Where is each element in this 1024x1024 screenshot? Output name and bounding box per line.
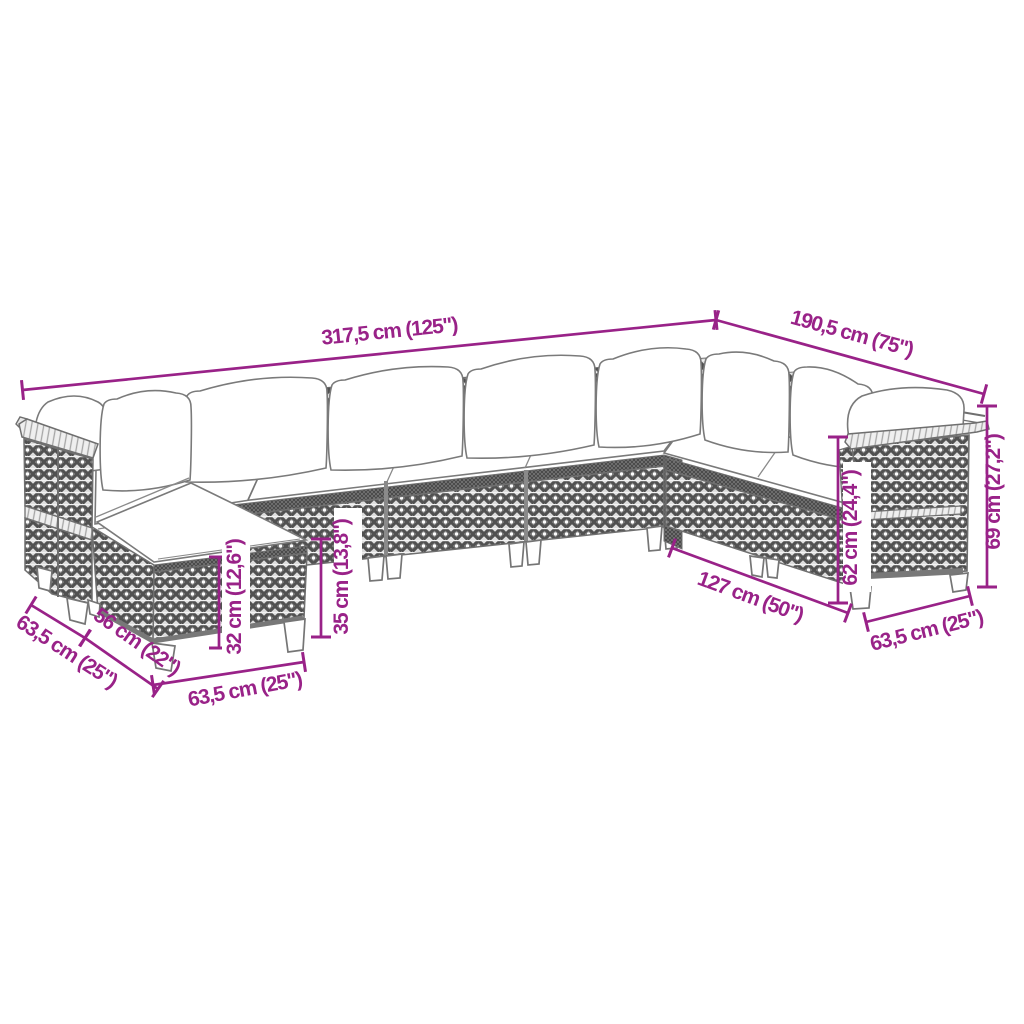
svg-text:190,5 cm (75"): 190,5 cm (75") bbox=[788, 306, 916, 362]
svg-text:35 cm (13,8"): 35 cm (13,8") bbox=[330, 519, 353, 634]
svg-text:63,5 cm (25"): 63,5 cm (25") bbox=[868, 606, 986, 656]
svg-text:317,5 cm (125"): 317,5 cm (125") bbox=[320, 313, 458, 349]
svg-text:69 cm (27,2"): 69 cm (27,2") bbox=[982, 434, 1005, 549]
svg-text:32 cm (12,6"): 32 cm (12,6") bbox=[223, 539, 246, 654]
svg-text:62 cm (24,4"): 62 cm (24,4") bbox=[839, 470, 862, 585]
svg-text:63,5 cm (25"): 63,5 cm (25") bbox=[186, 668, 304, 712]
